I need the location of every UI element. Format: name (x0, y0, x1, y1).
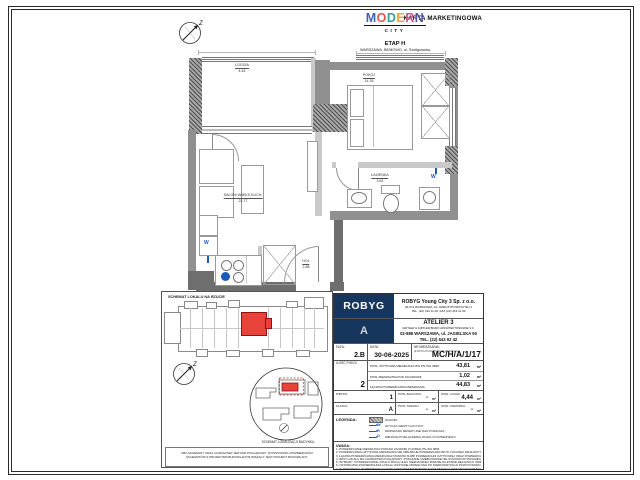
building-line (190, 308, 191, 348)
sofa (199, 149, 234, 184)
cooktop-burner (233, 272, 244, 283)
areas-row: ILOŚĆ POKOI: 2 POW. UŻYTKOWA MIESZKANIA … (334, 360, 483, 390)
loggia-value: 4,44 (461, 395, 473, 401)
window-band (356, 55, 444, 60)
legend-item: O MIEJSCE PODŁĄCZENIA OKAPU KUCHENNEGO (368, 434, 482, 440)
building-detail (286, 301, 298, 308)
legend-label: LEGENDA: (336, 417, 357, 422)
rooms-count-value: 2 (361, 380, 365, 389)
revision-door-arrow-icon: R (368, 430, 383, 434)
room-label-pokoj: POKÓJ 14.35 (363, 73, 375, 83)
cooktop-burner (221, 260, 232, 271)
highlighted-unit (241, 312, 267, 336)
loggia-railing (202, 57, 314, 62)
area-unit: m² (477, 365, 481, 369)
wall (334, 220, 343, 282)
ogrodek-value: - (471, 407, 473, 413)
pietro-cell: PIĘTRO: 1 (334, 391, 396, 402)
vent-symbol-kitchen: W (204, 241, 209, 246)
data-value: 30-06-2025 (374, 352, 409, 359)
developer-info: ROBYG Young City 3 Sp. z o.o. 02-972 WAR… (394, 294, 483, 318)
balkon-value: - (426, 395, 428, 401)
faza-value: 2.B (354, 352, 365, 359)
atelier-logo-glyph: A (360, 325, 368, 337)
fridge (199, 215, 218, 236)
compass-north-icon: Z (170, 358, 200, 388)
uwaga-line: 7. W PRZYPADKU ROZBIEŻNOŚCI KARTY Z PROJ… (336, 468, 481, 471)
ogrodek-cell: POW. OGRÓDKA: - m² (439, 403, 483, 414)
building-line (226, 308, 227, 348)
etap-title: ETAP H (330, 41, 460, 47)
faza-cell: FAZA: 2.B (334, 344, 368, 360)
area-subrow: ŁĄCZNA POWIERZCHNIA MIESZKANIA: 44,83 m² (368, 380, 483, 390)
room-label-loggia: LOGGIA 4.44 (235, 63, 249, 73)
walls-hatch-icon (368, 417, 383, 423)
window-band (202, 126, 312, 134)
logo-divider (364, 25, 426, 26)
taras-unit: m² (432, 409, 436, 413)
counter-divider (246, 256, 247, 283)
pillow (350, 119, 364, 147)
area-value: 44,83 (456, 382, 470, 388)
dimension-tick (315, 50, 316, 55)
area-subrow: POW. MIESZKANIA POD ŚCIANKAMI: 1,02 m² (368, 371, 483, 381)
logo-letter: O (377, 12, 387, 25)
marketing-card-page: Z KARTA MARKETINGOWA M O D E R N CITY ET… (0, 0, 640, 480)
ogrodek-unit: m² (477, 409, 481, 413)
klatka-row: KLATKA: A POW. TARASU: - m² POW. OGRÓDKA… (334, 402, 483, 414)
building-line (202, 308, 203, 348)
vent-symbol-bath: W (431, 175, 436, 180)
wardrobe (263, 245, 296, 285)
area-subrow: POW. UŻYTKOWA MIESZKANIA WG PN-ISO 9836:… (368, 361, 483, 371)
building-line (304, 308, 305, 348)
wall (330, 211, 458, 220)
uwaga-block: UWAGA: 1. POWIERZCHNIE MIESZKANIA PODANO… (336, 444, 481, 471)
klatka-cell: KLATKA: A (334, 403, 396, 414)
schematic-note-box: OBA SCHEMATY MAJĄ CHARAKTER JEDYNIE POGL… (165, 447, 329, 467)
compass-label: Z (198, 21, 203, 27)
legend-items: ŚCIANKI W WYCIĄG WENTYLACYJNY R DRZWICZK… (368, 417, 482, 440)
building-wing (164, 312, 181, 344)
site-location-schematic (246, 366, 326, 446)
area-unit: m² (477, 384, 481, 388)
id-row: FAZA: 2.B DATA: 30-06-2025 NR MIESZKANIA… (334, 343, 483, 360)
developer-phone: TEL. (22) 419 11 00, FAX (22) 419 11 00 (412, 309, 466, 313)
area-unit: m² (477, 375, 481, 379)
building-detail (296, 350, 310, 357)
building-line (238, 308, 239, 348)
building-line (314, 308, 315, 348)
logo-word-city: CITY (362, 28, 428, 33)
developer-name: ROBYG Young City 3 Sp. z o.o. (402, 299, 475, 306)
nr-mieszkania-cell: NR MIESZKANIA: (ETAP/KLATKA/PIĘTRO/NR MI… (412, 344, 483, 360)
note-line: SCHEMATÓW Z PROJEKTEM BUDOWLANYM WIĄŻĄCY… (166, 455, 328, 459)
vent-arrow (207, 256, 209, 263)
room-label-salon: SALON+ANEKS KUCH. 22.77 (224, 193, 263, 203)
table (241, 165, 264, 214)
toilet-tank (381, 185, 400, 194)
vent-shaft-box (199, 236, 218, 256)
wall (188, 271, 214, 290)
area-value: 1,02 (459, 373, 470, 379)
shelf (307, 141, 318, 192)
taras-value: - (426, 407, 428, 413)
hood-connection-arrow-icon: O (368, 435, 383, 439)
loggia-cell: POW. LOGGII: 4,44 m² (439, 391, 483, 402)
pillow (350, 89, 364, 117)
building-line (214, 308, 215, 348)
modern-city-logo: M O D E R N CITY (362, 12, 428, 33)
architect-row: A ATELIER 3 GIRTLER & GIRTLER BIURO ARCH… (334, 318, 483, 343)
logo-letter: E (396, 12, 405, 25)
dimension-line (356, 53, 446, 54)
floor-schematic-label: SCHEMAT LOKALU NA RZUCIE (168, 295, 225, 299)
balkon-unit: m² (432, 397, 436, 401)
logo-letter: N (415, 12, 425, 25)
building-detail (206, 302, 217, 309)
compass-label: Z (192, 362, 197, 368)
room-label-hol: HOL 2.88 (302, 259, 309, 269)
compass-north-icon: Z (176, 17, 206, 47)
wardrobe (421, 105, 450, 139)
developer-row: ROBYG ROBYG Young City 3 Sp. z o.o. 02-9… (334, 294, 483, 318)
wardrobe (421, 73, 450, 107)
architect-phone: TEL. (22) 643 92 42 (420, 337, 457, 343)
vent-arrow (435, 168, 437, 174)
loggia-unit: m² (477, 397, 481, 401)
balkon-cell: POW. BALKONU: - m² (396, 391, 439, 402)
site-schematic-label: SCHEMAT LOKALIZACJI BUDYNKU (250, 440, 326, 444)
dimension-tick (198, 50, 199, 55)
legend-row: LEGENDA: ŚCIANKI W WYCIĄG WENTYLACYJNY R… (334, 414, 483, 441)
logo-letter: R (405, 12, 415, 25)
wall (189, 58, 202, 134)
washer-drum (423, 191, 436, 204)
room-label-lazienka: ŁAZIENKA 3.81 (371, 173, 388, 183)
rooms-count-cell: ILOŚĆ POKOI: 2 (334, 361, 368, 390)
spec-table: ROBYG ROBYG Young City 3 Sp. z o.o. 02-9… (333, 293, 484, 470)
pietro-value: 1 (390, 395, 393, 401)
architect-info: ATELIER 3 GIRTLER & GIRTLER BIURO ARCHIT… (394, 319, 483, 343)
wall (188, 130, 196, 290)
building-detail (184, 301, 198, 309)
dimension-tick (445, 51, 446, 56)
klatka-value: A (389, 407, 393, 413)
building-detail (262, 349, 274, 357)
wall (330, 62, 458, 70)
building-line (292, 308, 293, 348)
project-address: WARSZAWA, BEMOWO, ul. Szeligowska (330, 48, 460, 52)
building-line (280, 308, 281, 348)
wall (445, 146, 458, 174)
entrance-opening (296, 282, 330, 291)
highlighted-unit-part (265, 318, 272, 329)
bed-line (373, 86, 374, 147)
cooktop-burner (233, 260, 244, 271)
area-subrows: POW. UŻYTKOWA MIESZKANIA WG PN-ISO 9836:… (368, 361, 483, 390)
taras-cell: POW. TARASU: - m² (396, 403, 439, 414)
nr-value: MC/H/A/1/17 (432, 349, 481, 359)
logo-letter: D (387, 12, 397, 25)
toilet-bowl (383, 194, 399, 213)
logo-word-modern: M O D E R N (362, 12, 428, 25)
data-cell: DATA: 30-06-2025 (368, 344, 412, 360)
logo-letter: M (366, 12, 377, 25)
pietro-row: PIĘTRO: 1 POW. BALKONU: - m² POW. LOGGII… (334, 390, 483, 402)
building-detail (228, 300, 240, 308)
highlighted-building (282, 383, 298, 391)
window-band (449, 88, 456, 146)
dimension-line (198, 52, 316, 53)
building-detail (226, 350, 240, 357)
atelier-logo: A (334, 319, 394, 343)
area-value: 43,81 (456, 363, 470, 369)
washbasin (351, 192, 367, 204)
uwaga-row: UWAGA: 1. POWIERZCHNIE MIESZKANIA PODANO… (334, 441, 483, 471)
vent-arrow-icon: W (368, 424, 383, 428)
hood-connection-point (221, 272, 230, 281)
building-detail (196, 349, 208, 357)
robyg-logo: ROBYG (334, 294, 394, 318)
